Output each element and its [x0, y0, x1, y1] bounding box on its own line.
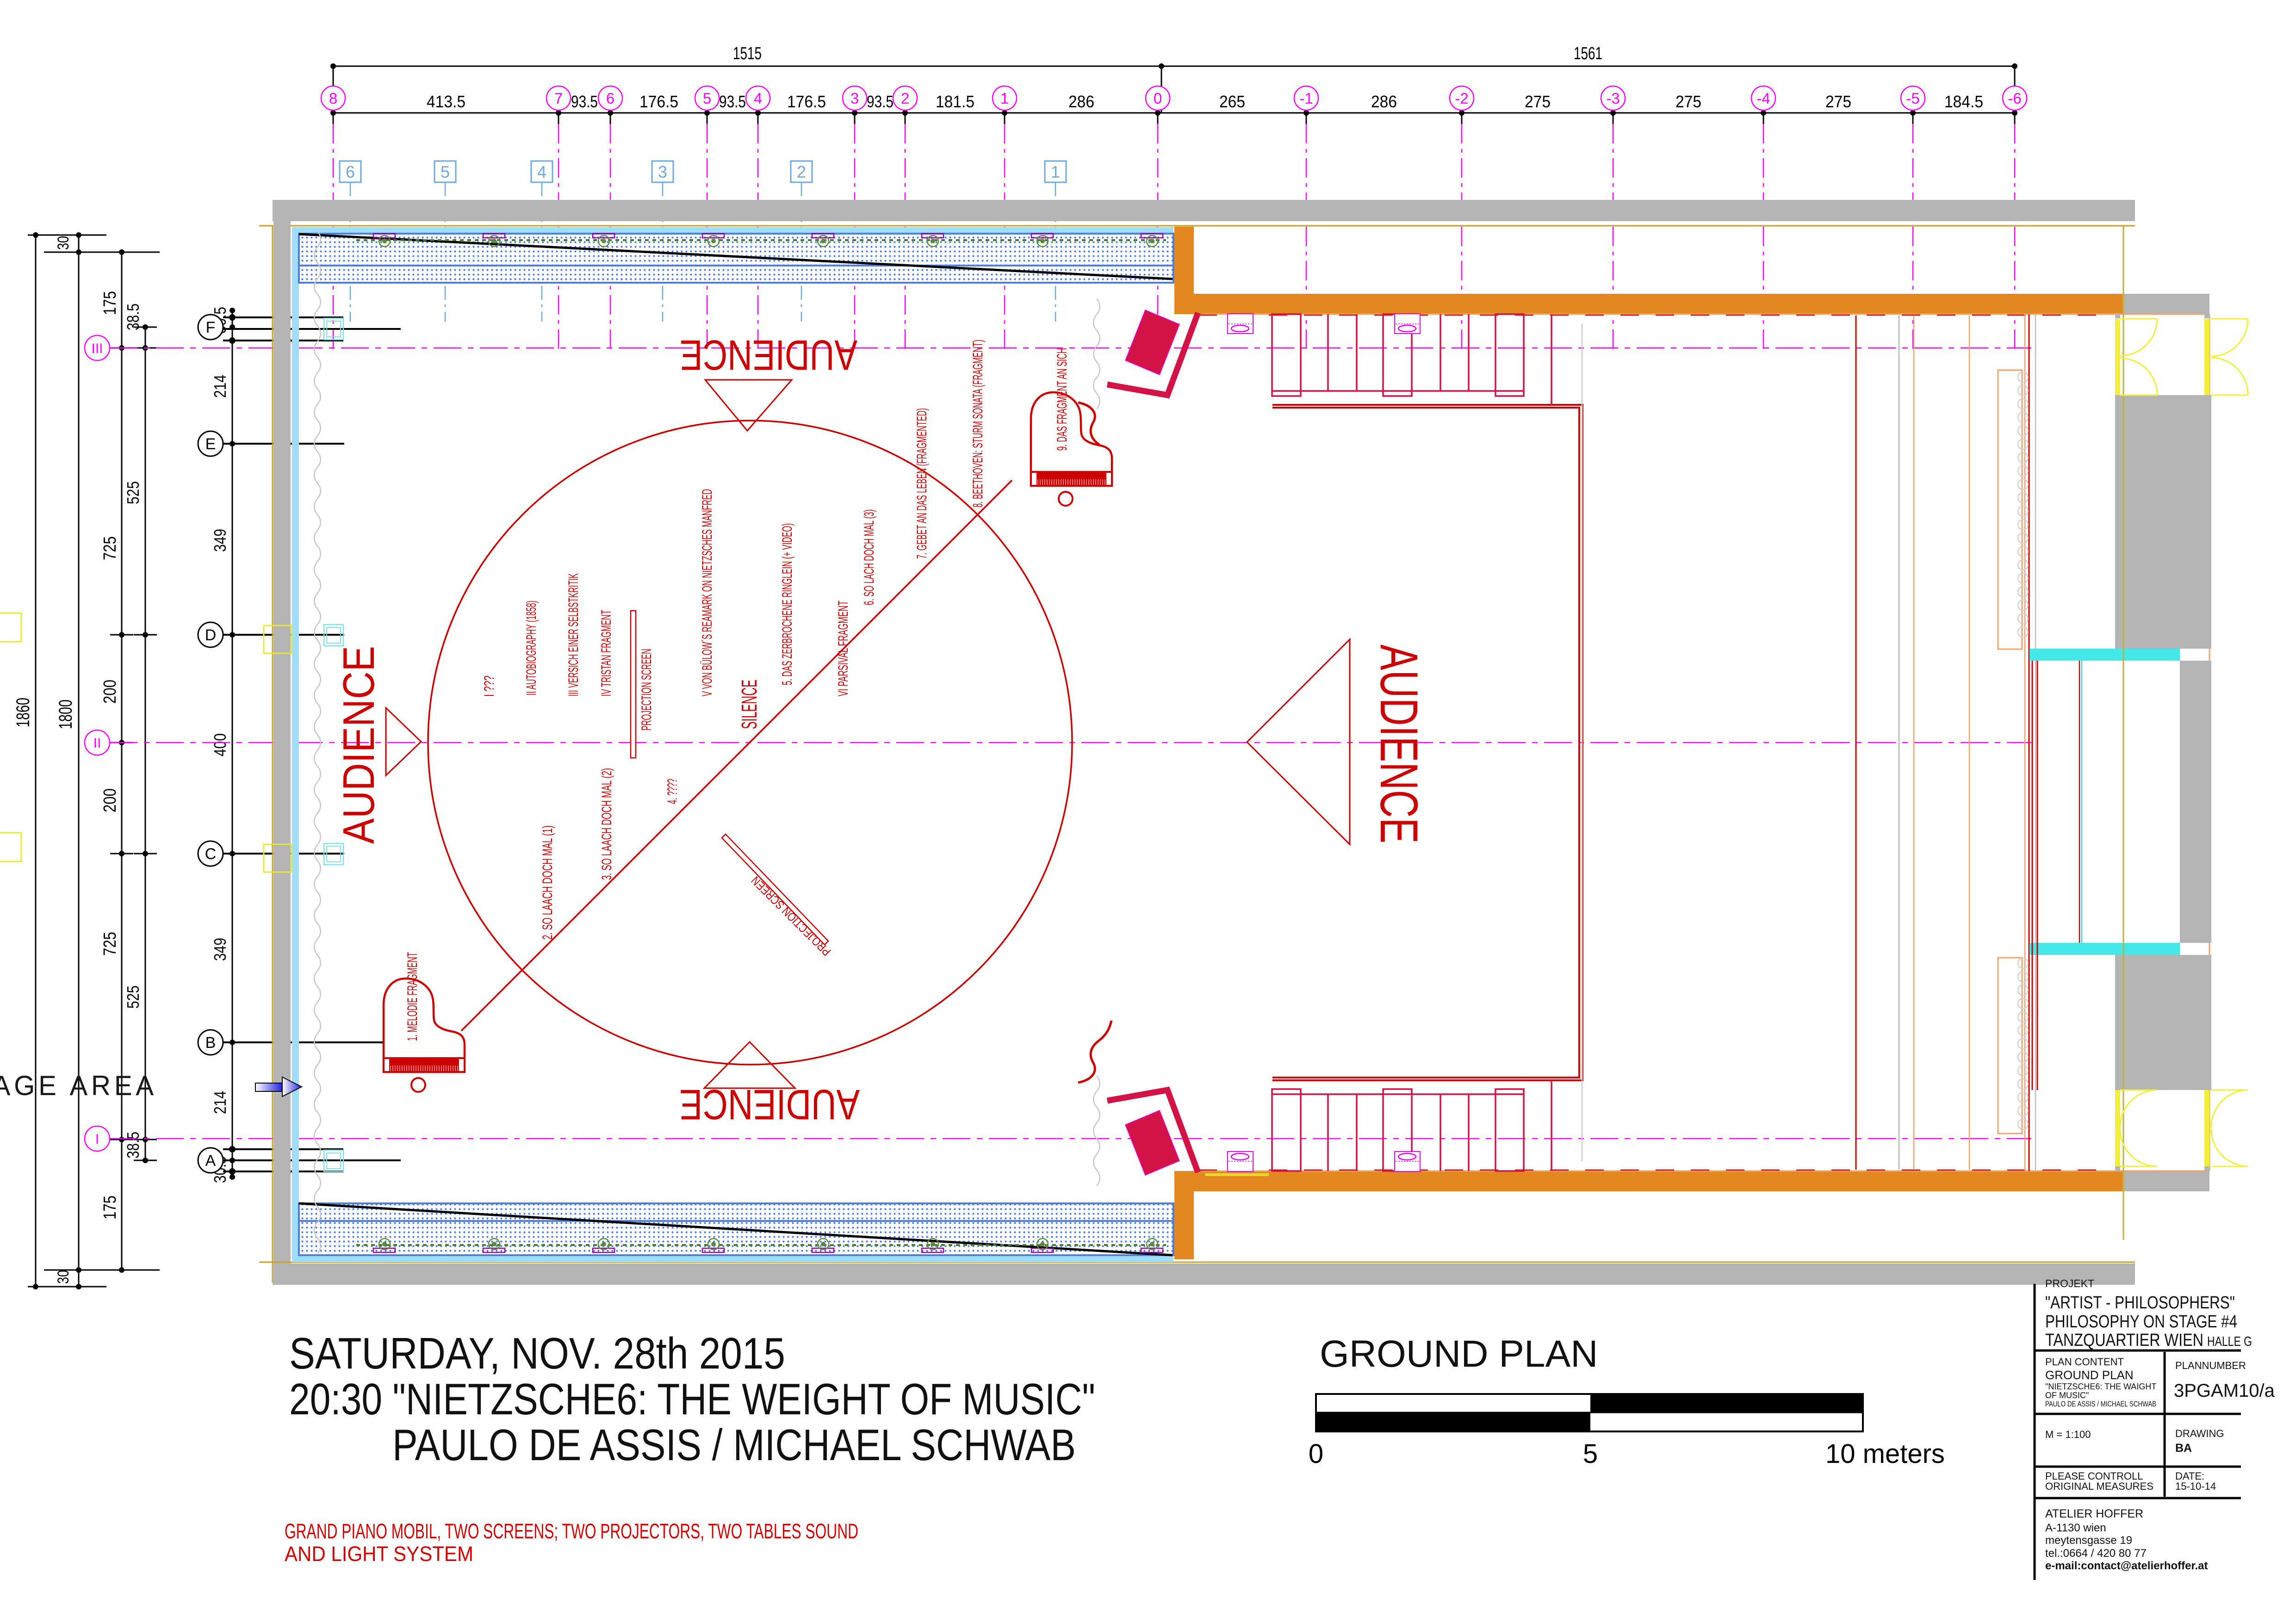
- svg-text:349: 349: [211, 529, 230, 552]
- svg-text:II: II: [93, 736, 101, 751]
- svg-text:1: 1: [1000, 90, 1009, 107]
- svg-text:PLANNUMBER: PLANNUMBER: [2175, 1360, 2246, 1371]
- svg-text:3: 3: [850, 90, 859, 107]
- svg-text:15-10-14: 15-10-14: [2175, 1481, 2216, 1492]
- svg-text:B: B: [205, 1034, 216, 1052]
- svg-text:PROJECTION SCREEN: PROJECTION SCREEN: [748, 873, 833, 959]
- svg-text:F: F: [206, 319, 216, 336]
- svg-text:214: 214: [211, 1091, 230, 1114]
- svg-text:1: 1: [1051, 162, 1060, 181]
- svg-text:184.5: 184.5: [1944, 92, 1983, 111]
- svg-text:5: 5: [441, 162, 450, 181]
- svg-text:5: 5: [1583, 1439, 1598, 1469]
- svg-text:3PGAM10/a: 3PGAM10/a: [2174, 1381, 2275, 1401]
- svg-text:176.5: 176.5: [639, 92, 678, 111]
- svg-text:PAULO DE ASSIS / MICHAEL SCHWA: PAULO DE ASSIS / MICHAEL SCHWAB: [2045, 1400, 2156, 1408]
- svg-text:525: 525: [124, 481, 143, 504]
- svg-text:7. GEBET AN DAS LEBEN (FRAGMEN: 7. GEBET AN DAS LEBEN (FRAGMENTED): [914, 408, 930, 559]
- svg-text:9. DAS FRAGMENT AN SICH: 9. DAS FRAGMENT AN SICH: [1055, 348, 1070, 451]
- svg-text:4: 4: [754, 90, 762, 107]
- svg-text:275: 275: [1825, 92, 1851, 111]
- svg-text:I ???: I ???: [482, 675, 497, 697]
- svg-text:-5: -5: [1906, 90, 1919, 107]
- svg-text:tel.:0664 / 420 80 77: tel.:0664 / 420 80 77: [2045, 1547, 2147, 1560]
- svg-text:A: A: [205, 1152, 216, 1170]
- svg-text:AUDIENCE: AUDIENCE: [680, 331, 857, 378]
- svg-text:meytensgasse 19: meytensgasse 19: [2045, 1534, 2132, 1547]
- svg-text:D: D: [205, 626, 217, 644]
- svg-text:DRAWING: DRAWING: [2175, 1428, 2224, 1439]
- svg-text:4: 4: [537, 162, 546, 181]
- svg-text:ATELIER HOFFER: ATELIER HOFFER: [2045, 1507, 2143, 1520]
- svg-text:PROJEKT: PROJEKT: [2045, 1277, 2094, 1289]
- svg-text:176.5: 176.5: [787, 92, 826, 111]
- svg-text:VI PARSIVAL FRAGMENT: VI PARSIVAL FRAGMENT: [836, 601, 851, 696]
- svg-text:2. SO LAACH DOCH MAL (1): 2. SO LAACH DOCH MAL (1): [540, 825, 555, 940]
- svg-text:PAULO DE ASSIS / MICHAEL SCHWA: PAULO DE ASSIS / MICHAEL SCHWAB: [392, 1420, 1076, 1470]
- svg-text:"NIETZSCHE6: THE WAIGHT: "NIETZSCHE6: THE WAIGHT: [2045, 1382, 2156, 1391]
- svg-text:200: 200: [100, 788, 120, 812]
- svg-text:III VERSICH EINER SELBSTKRITIK: III VERSICH EINER SELBSTKRITIK: [566, 573, 581, 696]
- svg-text:413.5: 413.5: [427, 92, 465, 111]
- svg-text:GROUND PLAN: GROUND PLAN: [1320, 1333, 1598, 1375]
- svg-text:II AUTOBIOGRAPHY (1858): II AUTOBIOGRAPHY (1858): [524, 601, 539, 695]
- svg-text:M = 1:100: M = 1:100: [2045, 1429, 2091, 1440]
- svg-text:-4: -4: [1756, 90, 1770, 107]
- svg-text:A-1130 wien: A-1130 wien: [2045, 1522, 2106, 1534]
- svg-text:200: 200: [100, 680, 120, 704]
- svg-text:400: 400: [211, 733, 230, 756]
- svg-text:SILENCE: SILENCE: [737, 680, 761, 729]
- svg-text:0: 0: [1154, 90, 1162, 107]
- svg-text:10 meters: 10 meters: [1825, 1439, 1945, 1469]
- svg-text:30: 30: [55, 236, 72, 250]
- svg-text:E: E: [205, 435, 216, 453]
- svg-text:OF MUSIC": OF MUSIC": [2045, 1391, 2089, 1400]
- svg-text:286: 286: [1068, 92, 1094, 111]
- svg-text:3: 3: [658, 162, 667, 181]
- svg-text:IV TRISTAN FRAGMENT: IV TRISTAN FRAGMENT: [599, 610, 614, 696]
- svg-text:286: 286: [1371, 92, 1397, 111]
- svg-text:1860: 1860: [13, 698, 33, 727]
- svg-text:725: 725: [100, 536, 120, 560]
- svg-text:525: 525: [124, 985, 143, 1009]
- svg-text:C: C: [205, 845, 217, 863]
- svg-text:I: I: [95, 1132, 99, 1147]
- svg-text:93.5: 93.5: [571, 92, 598, 111]
- svg-text:4. ????: 4. ????: [665, 779, 680, 804]
- svg-text:30: 30: [55, 1270, 72, 1284]
- svg-text:2: 2: [901, 90, 909, 107]
- svg-text:1. MELODIE FRAGMENT: 1. MELODIE FRAGMENT: [405, 952, 420, 1041]
- svg-text:2: 2: [797, 162, 806, 181]
- svg-text:-1: -1: [1299, 90, 1313, 107]
- svg-text:214: 214: [211, 375, 230, 398]
- svg-text:38.5: 38.5: [124, 304, 143, 330]
- svg-text:TANZQUARTIER WIENHALLE G: TANZQUARTIER WIENHALLE G: [2045, 1331, 2252, 1350]
- svg-text:181.5: 181.5: [936, 92, 974, 111]
- svg-text:1800: 1800: [56, 700, 76, 729]
- svg-text:PHILOSOPHY ON STAGE #4: PHILOSOPHY ON STAGE #4: [2045, 1312, 2237, 1332]
- svg-text:e-mail:contact@atelierhoffer.a: e-mail:contact@atelierhoffer.at: [2045, 1560, 2208, 1572]
- svg-text:V VON BÜLOW´S REAMARK ON NIET: V VON BÜLOW´S REAMARK ON NIETZSCHES MANF…: [700, 489, 715, 696]
- svg-text:1515: 1515: [733, 44, 762, 63]
- svg-text:93.5: 93.5: [719, 92, 746, 111]
- svg-text:GROUND PLAN: GROUND PLAN: [2045, 1368, 2134, 1382]
- svg-text:PROJECTION SCREEN: PROJECTION SCREEN: [639, 649, 654, 731]
- svg-text:BA: BA: [2175, 1442, 2192, 1455]
- svg-text:8. BEETHOVEN: STURM SONATA (FR: 8. BEETHOVEN: STURM SONATA (FRAGMENT): [970, 340, 986, 508]
- svg-text:20:30 "NIETZSCHE6: THE WEIGHT: 20:30 "NIETZSCHE6: THE WEIGHT OF MUSIC": [289, 1375, 1095, 1424]
- svg-text:-3: -3: [1606, 90, 1620, 107]
- svg-text:"ARTIST - PHILOSOPHERS": "ARTIST - PHILOSOPHERS": [2045, 1293, 2235, 1313]
- svg-text:-2: -2: [1455, 90, 1468, 107]
- svg-text:93.5: 93.5: [867, 92, 894, 111]
- svg-text:5. DAS ZERBROCHENE RINGLEIN (+: 5. DAS ZERBROCHENE RINGLEIN (+ VIDEO): [780, 523, 795, 685]
- svg-text:STAGE AREA: STAGE AREA: [0, 1070, 157, 1101]
- svg-text:38.5: 38.5: [124, 1132, 143, 1158]
- svg-text:175: 175: [100, 291, 120, 315]
- svg-text:3. SO LAACH DOCH MAL (2): 3. SO LAACH DOCH MAL (2): [599, 768, 614, 880]
- svg-text:725: 725: [100, 932, 120, 956]
- svg-text:III: III: [91, 341, 103, 356]
- svg-text:1561: 1561: [1574, 44, 1602, 63]
- svg-text:GRAND PIANO MOBIL, TWO SCREENS: GRAND PIANO MOBIL, TWO SCREENS; TWO PROJ…: [285, 1519, 858, 1543]
- svg-text:8: 8: [329, 90, 337, 107]
- svg-text:6. SO LACH DOCH MAL (3): 6. SO LACH DOCH MAL (3): [862, 509, 877, 605]
- svg-text:6: 6: [346, 162, 355, 181]
- svg-text:-6: -6: [2008, 90, 2021, 107]
- svg-text:265: 265: [1219, 92, 1245, 111]
- svg-text:PLAN CONTENT: PLAN CONTENT: [2045, 1356, 2124, 1368]
- svg-text:7: 7: [554, 90, 563, 107]
- svg-text:5: 5: [703, 90, 711, 107]
- svg-text:ORIGINAL MEASURES: ORIGINAL MEASURES: [2045, 1481, 2153, 1492]
- svg-text:AUDIENCE: AUDIENCE: [334, 646, 384, 844]
- svg-text:SATURDAY, NOV. 28th 2015: SATURDAY, NOV. 28th 2015: [289, 1329, 785, 1378]
- svg-text:6: 6: [606, 90, 614, 107]
- svg-text:AND LIGHT SYSTEM: AND LIGHT SYSTEM: [285, 1542, 473, 1566]
- svg-text:AUDIENCE: AUDIENCE: [1369, 644, 1428, 843]
- svg-text:175: 175: [100, 1196, 120, 1220]
- svg-text:0: 0: [1309, 1439, 1323, 1469]
- svg-text:275: 275: [1675, 92, 1701, 111]
- svg-text:275: 275: [1525, 92, 1551, 111]
- svg-text:349: 349: [211, 938, 230, 961]
